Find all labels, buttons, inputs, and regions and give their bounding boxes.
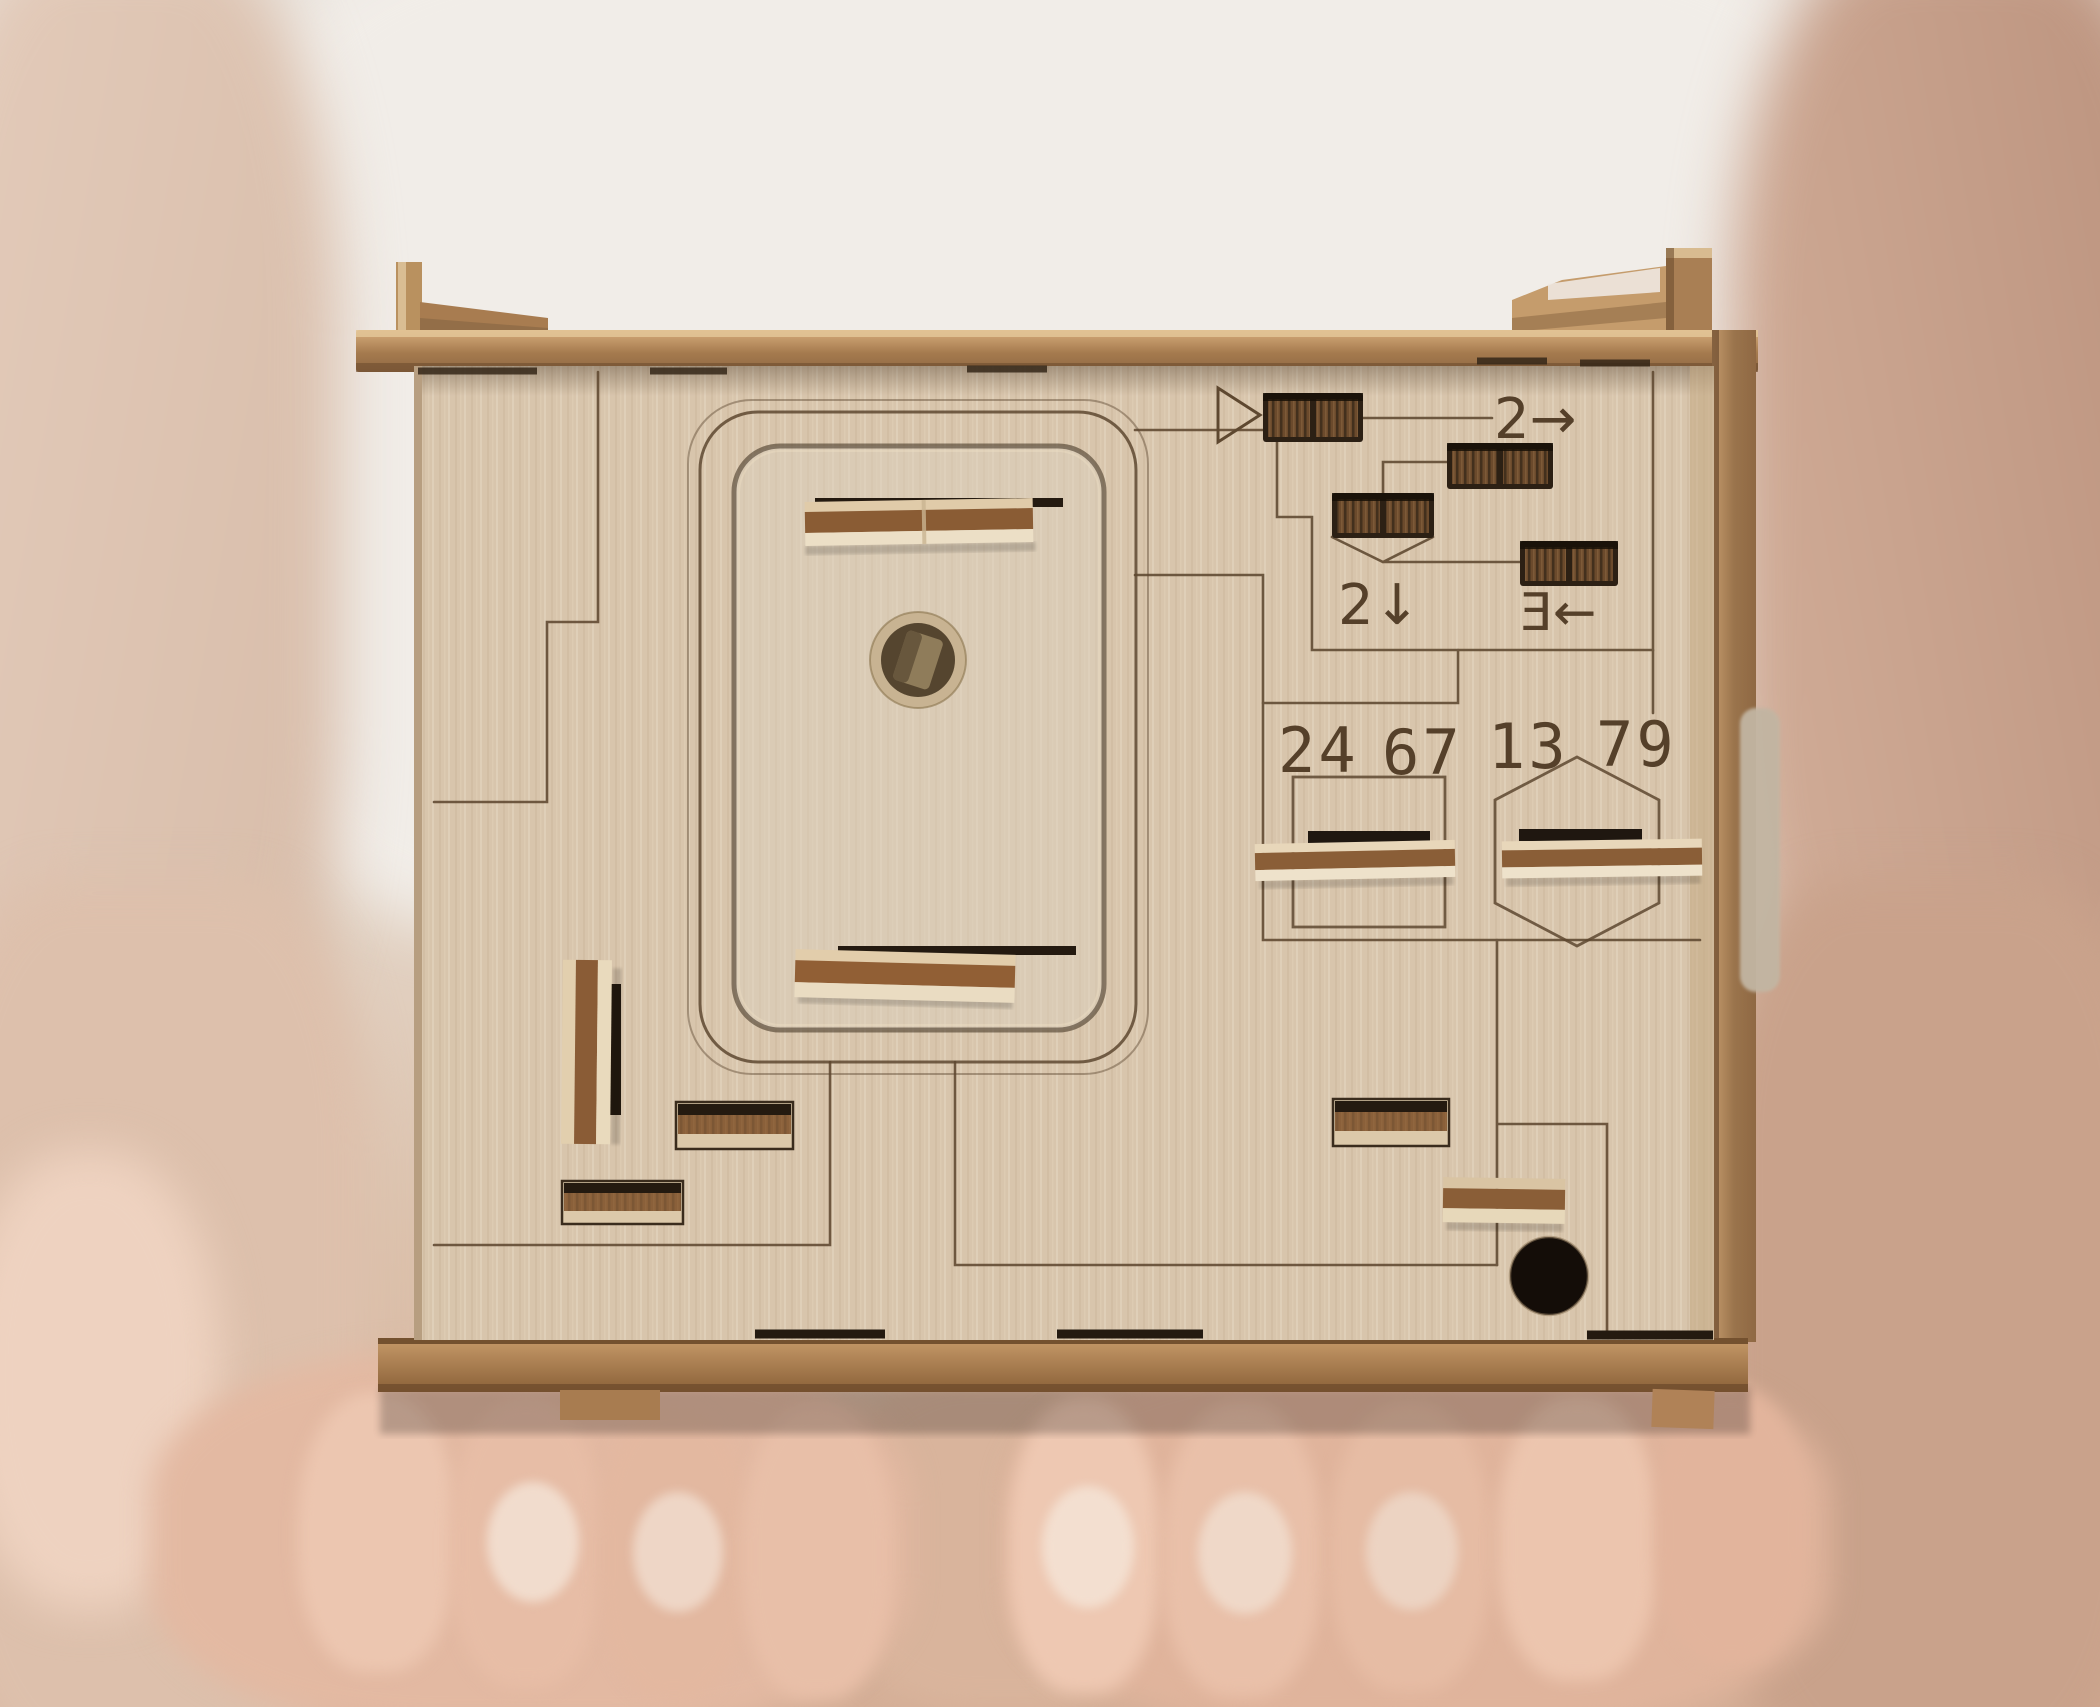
engraving-slide-down: 2↓ [1338, 573, 1421, 638]
corner-hole [1510, 1237, 1588, 1315]
top-rail [356, 330, 1758, 372]
bottom-right-handle [1443, 1177, 1566, 1232]
bottom-tab [560, 1390, 660, 1420]
engraving-number-79: 79 [1596, 708, 1677, 781]
door-top-handle [805, 498, 1036, 555]
side-latch-tab [1740, 708, 1780, 992]
photo-scene: 2→ 2↓ Ǝ← 24 67 13 79 [0, 0, 2100, 1707]
slider-slot-4 [1520, 541, 1618, 586]
engraving-slide-right: 2→ [1494, 387, 1577, 452]
dial-handle-left [1255, 840, 1456, 889]
slot-window-a [676, 1102, 793, 1149]
engraving-slide-left: Ǝ← [1520, 583, 1596, 643]
top-left-corner-bracket [396, 262, 548, 336]
door-bottom-handle [794, 949, 1015, 1009]
vertical-slider [561, 960, 622, 1145]
slider-slot-3 [1332, 493, 1434, 538]
dial-handle-right [1502, 839, 1703, 887]
right-side-plank [1712, 330, 1780, 1342]
slider-slot-1 [1263, 393, 1363, 442]
door [688, 400, 1148, 1074]
engraving-number-13: 13 [1488, 710, 1569, 783]
dial-slot-right [1519, 829, 1642, 841]
door-peg-hole [870, 612, 966, 708]
slot-window-b [562, 1181, 683, 1224]
slot-window-d [1333, 1099, 1449, 1146]
puzzle-box: 2→ 2↓ Ǝ← 24 67 13 79 [0, 0, 2100, 1707]
top-right-wedge [1512, 248, 1712, 332]
bottom-tab [1651, 1389, 1714, 1429]
